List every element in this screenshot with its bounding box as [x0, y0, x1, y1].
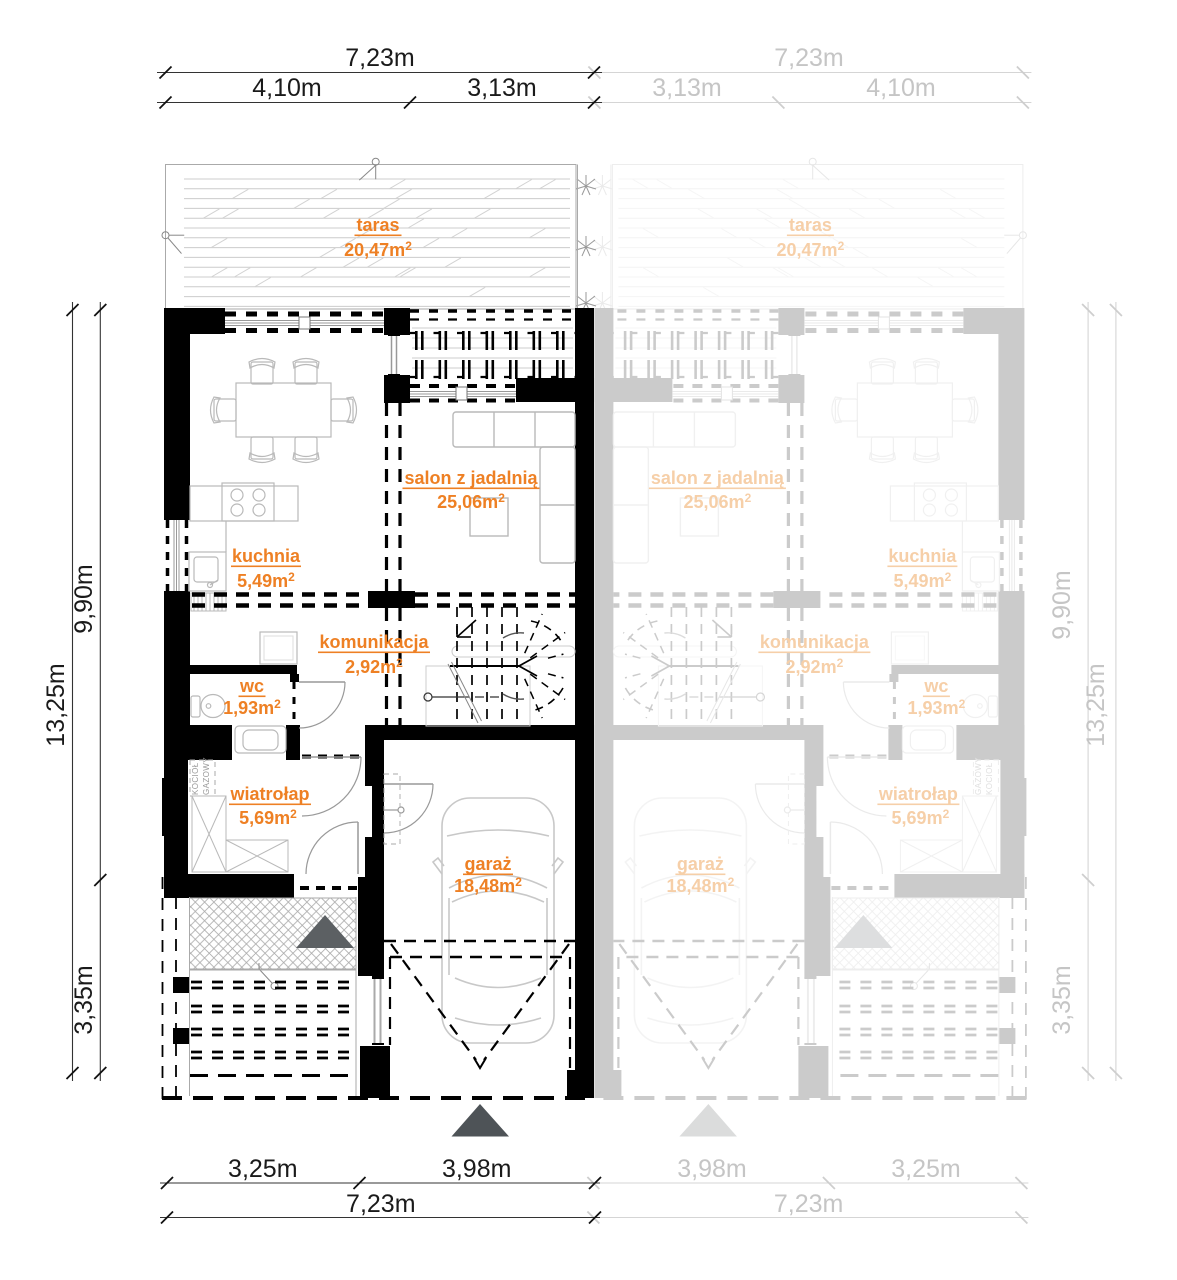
- svg-text:3,35m: 3,35m: [1048, 965, 1076, 1034]
- svg-text:3,25m: 3,25m: [228, 1155, 297, 1183]
- svg-text:7,23m: 7,23m: [345, 44, 414, 72]
- svg-text:KOCIOŁ: KOCIOŁ: [985, 762, 994, 795]
- svg-text:komunikacja: komunikacja: [319, 632, 429, 652]
- svg-text:salon z jadalnią: salon z jadalnią: [651, 468, 785, 488]
- svg-text:20,47m2: 20,47m2: [777, 239, 845, 260]
- svg-text:1,93m2: 1,93m2: [908, 697, 966, 718]
- svg-text:25,06m2: 25,06m2: [437, 491, 505, 512]
- svg-text:20,47m2: 20,47m2: [344, 239, 412, 260]
- svg-text:GAZOWY: GAZOWY: [974, 757, 983, 795]
- svg-text:wiatrołap: wiatrołap: [229, 784, 309, 804]
- svg-text:3,13m: 3,13m: [467, 74, 536, 102]
- svg-text:5,49m2: 5,49m2: [894, 570, 952, 591]
- svg-text:9,90m: 9,90m: [70, 564, 98, 633]
- svg-text:wc: wc: [923, 676, 948, 696]
- svg-text:7,23m: 7,23m: [774, 44, 843, 72]
- svg-text:3,25m: 3,25m: [891, 1155, 960, 1183]
- svg-text:wiatrołap: wiatrołap: [878, 784, 958, 804]
- svg-text:3,98m: 3,98m: [677, 1155, 746, 1183]
- svg-text:KOCIOŁ: KOCIOŁ: [191, 762, 200, 795]
- svg-text:18,48m2: 18,48m2: [667, 875, 735, 896]
- svg-text:garaż: garaż: [677, 854, 724, 874]
- svg-text:7,23m: 7,23m: [346, 1190, 415, 1218]
- svg-text:18,48m2: 18,48m2: [454, 875, 522, 896]
- svg-text:GAZOWY: GAZOWY: [202, 757, 211, 795]
- svg-text:3,13m: 3,13m: [652, 74, 721, 102]
- svg-text:garaż: garaż: [464, 854, 511, 874]
- svg-text:3,98m: 3,98m: [442, 1155, 511, 1183]
- svg-text:7,23m: 7,23m: [774, 1190, 843, 1218]
- svg-text:5,69m2: 5,69m2: [239, 807, 297, 828]
- svg-text:9,90m: 9,90m: [1048, 570, 1076, 639]
- svg-text:1,93m2: 1,93m2: [223, 697, 281, 718]
- svg-text:2,92m2: 2,92m2: [345, 656, 403, 677]
- svg-text:25,06m2: 25,06m2: [684, 491, 752, 512]
- svg-text:taras: taras: [789, 215, 832, 235]
- svg-text:13,25m: 13,25m: [1082, 663, 1110, 746]
- svg-text:4,10m: 4,10m: [866, 74, 935, 102]
- svg-text:4,10m: 4,10m: [252, 74, 321, 102]
- svg-text:kuchnia: kuchnia: [888, 546, 957, 566]
- svg-text:taras: taras: [356, 215, 399, 235]
- svg-text:kuchnia: kuchnia: [232, 546, 301, 566]
- svg-text:komunikacja: komunikacja: [760, 632, 870, 652]
- svg-text:2,92m2: 2,92m2: [786, 656, 844, 677]
- svg-text:5,49m2: 5,49m2: [237, 570, 295, 591]
- svg-text:13,25m: 13,25m: [42, 663, 70, 746]
- svg-text:salon z jadalnią: salon z jadalnią: [404, 468, 538, 488]
- svg-text:wc: wc: [239, 676, 264, 696]
- svg-text:3,35m: 3,35m: [70, 965, 98, 1034]
- svg-text:5,69m2: 5,69m2: [892, 807, 950, 828]
